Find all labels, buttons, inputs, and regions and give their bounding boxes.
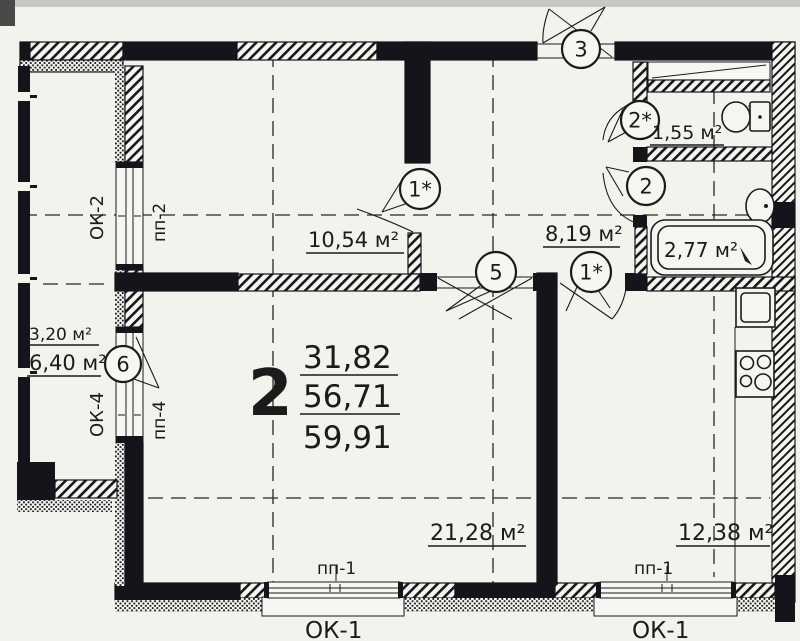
wall-insulation-dots xyxy=(115,600,240,612)
window-jamb xyxy=(731,582,736,598)
door-jamb xyxy=(633,147,647,162)
balcony-glazing-gap xyxy=(18,182,30,191)
wc-top-wall xyxy=(648,80,770,92)
wall-segment-black xyxy=(123,42,237,60)
window-jamb xyxy=(116,162,143,168)
living-area-label: 21,28 м² xyxy=(430,521,525,546)
stove-burner xyxy=(741,376,752,387)
door-mark-kitchen: 1* xyxy=(571,252,611,292)
pp1-right-label: пп-1 xyxy=(634,559,673,579)
apartment-living-area: 31,82 xyxy=(303,340,392,376)
wall-segment-hatch xyxy=(400,583,455,598)
wall-segment-black xyxy=(125,443,143,586)
pp4-label: пп-4 xyxy=(150,401,170,440)
living-top-wall-black xyxy=(115,273,238,291)
bedroom-wall-black xyxy=(405,42,430,163)
wall-segment-black xyxy=(615,42,795,60)
balcony-glazed-wall xyxy=(18,66,30,462)
balcony-bottom-wall xyxy=(55,480,117,498)
kitchen-living-wall xyxy=(537,273,557,583)
hall-area-label: 8,19 м² xyxy=(545,222,623,246)
pp1-left-label: пп-1 xyxy=(317,559,356,579)
toilet-button xyxy=(758,115,762,119)
ok2-label: ОК-2 xyxy=(87,195,108,240)
sanitary-wall-hatch xyxy=(633,62,647,102)
window-jamb xyxy=(116,327,143,333)
door-mark-bedroom: 1* xyxy=(400,169,440,209)
window-jamb xyxy=(116,436,143,443)
toilet-icon xyxy=(722,102,770,132)
sanitary-wall-hatch xyxy=(635,227,647,274)
window-sill xyxy=(594,597,737,616)
door-mark-label: 6 xyxy=(116,353,129,377)
bedroom-area-label: 10,54 м² xyxy=(308,228,399,252)
stove-burner xyxy=(758,356,771,369)
door-mark-label: 2* xyxy=(628,109,652,133)
right-outer-wall xyxy=(772,42,795,622)
window-frame xyxy=(268,582,400,598)
scan-corner-mark xyxy=(0,0,15,26)
living-top-wall-hatch xyxy=(238,274,420,291)
kitchen-sink-icon xyxy=(736,288,775,327)
wall-segment-hatch xyxy=(733,583,775,598)
floor-plan-drawing: 3 2* 2 1* 5 1* 6 10,54 м² 8,19 м² xyxy=(0,0,800,641)
wc-bath-divider xyxy=(647,147,772,161)
door-mark-entrance: 3 xyxy=(562,30,600,68)
washbasin-tap xyxy=(764,204,768,208)
kitchen-area-label: 12,38 м² xyxy=(678,521,773,546)
window-jamb xyxy=(596,582,601,598)
door-jamb xyxy=(633,215,647,227)
apartment-number: 2 xyxy=(248,357,293,431)
wall-segment-black xyxy=(377,42,537,60)
balcony-area-reduced-label: 3,20 м² xyxy=(29,325,92,345)
wall-niche-black xyxy=(772,202,795,228)
wall-insulation-dots xyxy=(115,443,125,586)
window-jamb xyxy=(398,582,403,598)
window-jamb xyxy=(116,264,143,270)
sink-inner xyxy=(741,293,770,322)
bathroom-area-label: 2,77 м² xyxy=(664,238,738,262)
wall-insulation-dots xyxy=(20,60,123,72)
wall-insulation-dots xyxy=(733,598,775,612)
apartment-total-area: 59,91 xyxy=(303,420,392,456)
door-mark-living: 5 xyxy=(476,252,516,292)
wall-insulation-dots xyxy=(17,500,112,512)
balcony-glazing-gap xyxy=(18,92,30,101)
wall-segment-black xyxy=(455,583,555,600)
floor-plan-page: 3 2* 2 1* 5 1* 6 10,54 м² 8,19 м² xyxy=(0,0,800,641)
wall-segment-hatch xyxy=(30,42,123,60)
stove-burner xyxy=(741,357,754,370)
window-jamb xyxy=(264,582,269,598)
stove-icon xyxy=(736,351,774,397)
door-mark-balcony: 6 xyxy=(105,346,141,382)
window-living-room xyxy=(262,582,404,616)
door-mark-label: 5 xyxy=(489,261,502,285)
balcony-tick xyxy=(30,185,37,188)
window-frame xyxy=(600,582,733,598)
balcony-area-full-label: 6,40 м² xyxy=(29,351,107,375)
window-kitchen xyxy=(594,582,737,616)
balcony-corner-black xyxy=(17,462,55,500)
door-jamb xyxy=(420,273,437,291)
bedroom-wall-hatch xyxy=(408,233,421,274)
toilet-bowl xyxy=(722,102,750,132)
bottom-outer-wall xyxy=(115,582,775,616)
ok1-left-label: ОК-1 xyxy=(305,618,362,641)
window-ok2 xyxy=(116,162,143,270)
door-jamb xyxy=(625,273,647,291)
wc-area-label: 1,55 м² xyxy=(652,122,722,144)
wall-segment-hatch xyxy=(555,583,600,598)
balcony-glazing-gap xyxy=(18,274,30,283)
door-mark-label: 1* xyxy=(579,261,603,285)
door-mark-label: 3 xyxy=(574,38,587,62)
wall-corner-black xyxy=(775,575,795,622)
pp2-label: пп-2 xyxy=(150,203,170,242)
apartment-heated-area: 56,71 xyxy=(303,379,392,415)
ok1-right-label: ОК-1 xyxy=(632,618,689,641)
scan-edge-strip xyxy=(0,0,800,7)
washbasin-icon xyxy=(746,189,774,223)
door-mark-label: 2 xyxy=(639,175,652,199)
balcony-tick xyxy=(30,277,37,280)
balcony-tick xyxy=(30,95,37,98)
wall-insulation-dots xyxy=(400,598,600,612)
wall-insulation-dots xyxy=(115,66,125,162)
washbasin-bowl xyxy=(746,189,774,223)
window-sill xyxy=(262,597,404,616)
stove-burner xyxy=(755,374,771,390)
wall-segment-hatch xyxy=(125,66,143,162)
wall-segment-hatch xyxy=(237,42,377,60)
ok4-label: ОК-4 xyxy=(87,392,108,437)
door-mark-label: 1* xyxy=(408,178,432,202)
door-mark-bathroom: 2 xyxy=(627,167,665,205)
wall-segment-hatch xyxy=(240,583,268,598)
left-apartment-wall xyxy=(115,66,143,586)
